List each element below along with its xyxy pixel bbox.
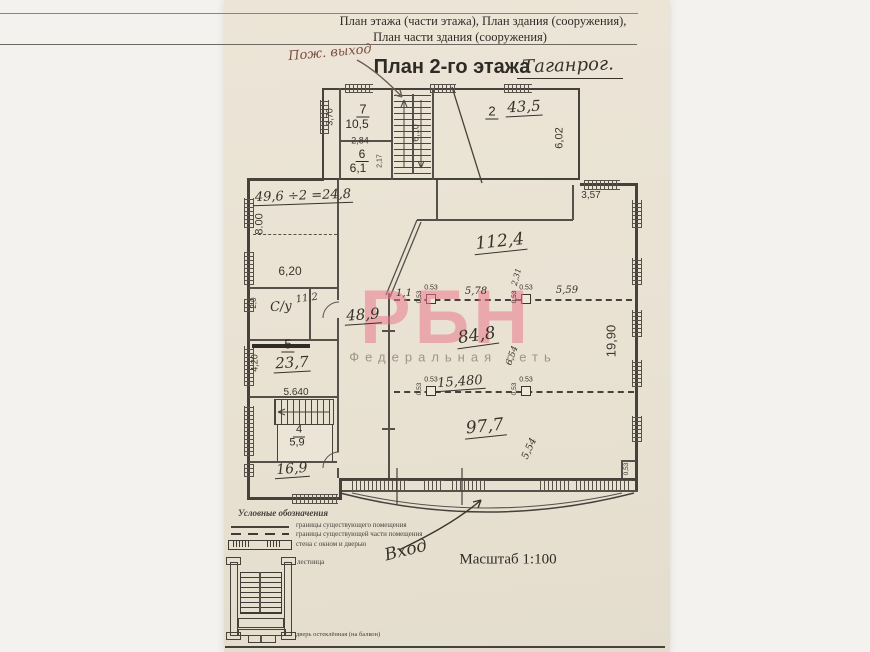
window-symbol (430, 84, 456, 93)
legend-item-label: дверь остеклённая (на балкон) (296, 631, 380, 638)
legend-solid-line-swatch (231, 526, 289, 528)
sheet-bottom-rule (225, 646, 665, 648)
wall-segment (635, 183, 638, 492)
window-symbol (632, 200, 642, 228)
legend-wall-window-hatch (233, 541, 251, 547)
room-2-area: 43,5 (505, 99, 543, 118)
wall-segment (247, 178, 324, 181)
column-size-label: 0,53 (512, 383, 519, 396)
dim-5-59: 5,59 (556, 286, 578, 296)
wall-segment (572, 185, 574, 220)
legend-door-symbol (248, 635, 276, 643)
wall-segment (417, 219, 573, 221)
plan-title: План 2-го этажа (374, 57, 531, 77)
window-symbol (352, 480, 408, 492)
window-symbol (540, 480, 572, 492)
window-symbol (244, 464, 254, 477)
column-size-label: 0,53 (417, 383, 424, 396)
wall-tick (382, 428, 395, 430)
legend-door-divider (260, 635, 262, 642)
room-4-area: 5,9 (289, 438, 304, 449)
room-5-number: 5 (281, 338, 294, 353)
title-underline (517, 78, 623, 79)
dim-1-1: 1,1 (396, 289, 412, 299)
window-symbol (452, 480, 486, 492)
corridor-area: 48,9 (344, 306, 383, 326)
legend-item-label: границы существующего помещения (296, 521, 407, 529)
legend-stairs-cap (226, 557, 241, 565)
header-rule-bottom (0, 44, 637, 45)
legend-wall-swatch (228, 540, 292, 550)
wall-segment (339, 88, 341, 180)
legend-stairs-rail (284, 562, 292, 636)
wall-segment (391, 88, 393, 180)
legend-item-label: лестница (297, 558, 324, 566)
dim-5-78: 5,78 (465, 287, 487, 297)
window-symbol (504, 84, 532, 93)
scanned-floor-plan-page: План этажа (части этажа), План здания (с… (0, 0, 870, 652)
window-symbol (244, 252, 254, 285)
room-6-number: 6 (356, 148, 369, 162)
dim-4-20: 4,20 (251, 354, 260, 372)
scale-label: Масштаб 1:100 (459, 553, 556, 568)
column-size-label: 0.53 (424, 377, 438, 384)
legend-stairs-rail (230, 562, 238, 636)
column-size-label: 0.53 (424, 285, 438, 292)
legend-item-label: границы существующей части помещения (296, 530, 422, 538)
watermark-subtitle: Федеральная сеть (349, 351, 557, 364)
window-symbol (632, 360, 642, 387)
corner-size-label: 0,53 (624, 463, 631, 476)
window-symbol (632, 416, 642, 442)
column-size-label: 0.53 (519, 377, 533, 384)
plan-title-city: Таганрог. (522, 55, 614, 76)
column-size-label: 0,53 (417, 291, 424, 304)
dim-2-0: 2,0 (250, 297, 258, 308)
window-symbol (584, 180, 620, 190)
window-symbol (345, 84, 373, 93)
window-symbol (576, 480, 632, 492)
dim-3-57: 3,57 (581, 191, 600, 201)
dim-6-20: 6,20 (278, 265, 301, 277)
form-caption-line2: План части здания (сооружения) (373, 31, 547, 44)
legend-wall-window-hatch (267, 541, 281, 547)
dim-2-84: 2,84 (351, 137, 369, 146)
wall-segment (337, 468, 339, 478)
wall-segment (432, 88, 434, 180)
column-size-label: 0,53 (512, 291, 519, 304)
room-5-area: 23,7 (273, 355, 311, 374)
bathroom-label: С/у (270, 300, 293, 314)
dim-2-17: 2,17 (377, 154, 384, 168)
legend-stairs-divider (259, 572, 261, 612)
wall-segment (322, 178, 580, 180)
window-symbol (632, 310, 642, 337)
column-symbol (521, 386, 531, 396)
watermark-logo: РБН (360, 280, 532, 356)
dim-5-640: 5.640 (283, 388, 308, 398)
legend-item-label: стена с окном и дверью (296, 540, 366, 548)
dim-6-10: 6,10 (412, 124, 421, 142)
room-7-area: 10,5 (345, 118, 368, 130)
legend-stairs-cap (281, 557, 296, 565)
window-symbol (292, 494, 338, 504)
legend-stairs-treads (240, 572, 282, 614)
dim-6-02: 6,02 (555, 127, 566, 148)
dim-19-90: 19,90 (605, 325, 618, 358)
dim-8-00: 8.00 (255, 213, 266, 234)
dashed-partition (253, 234, 337, 235)
wall-segment (249, 287, 337, 289)
legend-stairs-landing (238, 618, 284, 628)
window-symbol (424, 480, 444, 492)
stairs-treads (274, 399, 334, 425)
dim-3-70: 3,70 (326, 108, 335, 126)
form-caption-line1: План этажа (части этажа), План здания (с… (340, 15, 627, 28)
column-symbol (426, 386, 436, 396)
legend-title: Условные обозначения (238, 508, 328, 518)
legend-dashed-line-swatch (231, 533, 289, 535)
window-symbol (632, 258, 642, 285)
room-7-number: 7 (356, 103, 369, 118)
room-6-area: 6,1 (350, 162, 367, 174)
bottom-left-area: 16,9 (274, 461, 310, 479)
wall-segment (436, 180, 438, 220)
wall-segment (578, 88, 580, 180)
column-size-label: 0.53 (519, 285, 533, 292)
window-symbol (244, 406, 254, 456)
wall-segment (337, 318, 339, 452)
room-2-number: 2 (485, 105, 498, 120)
